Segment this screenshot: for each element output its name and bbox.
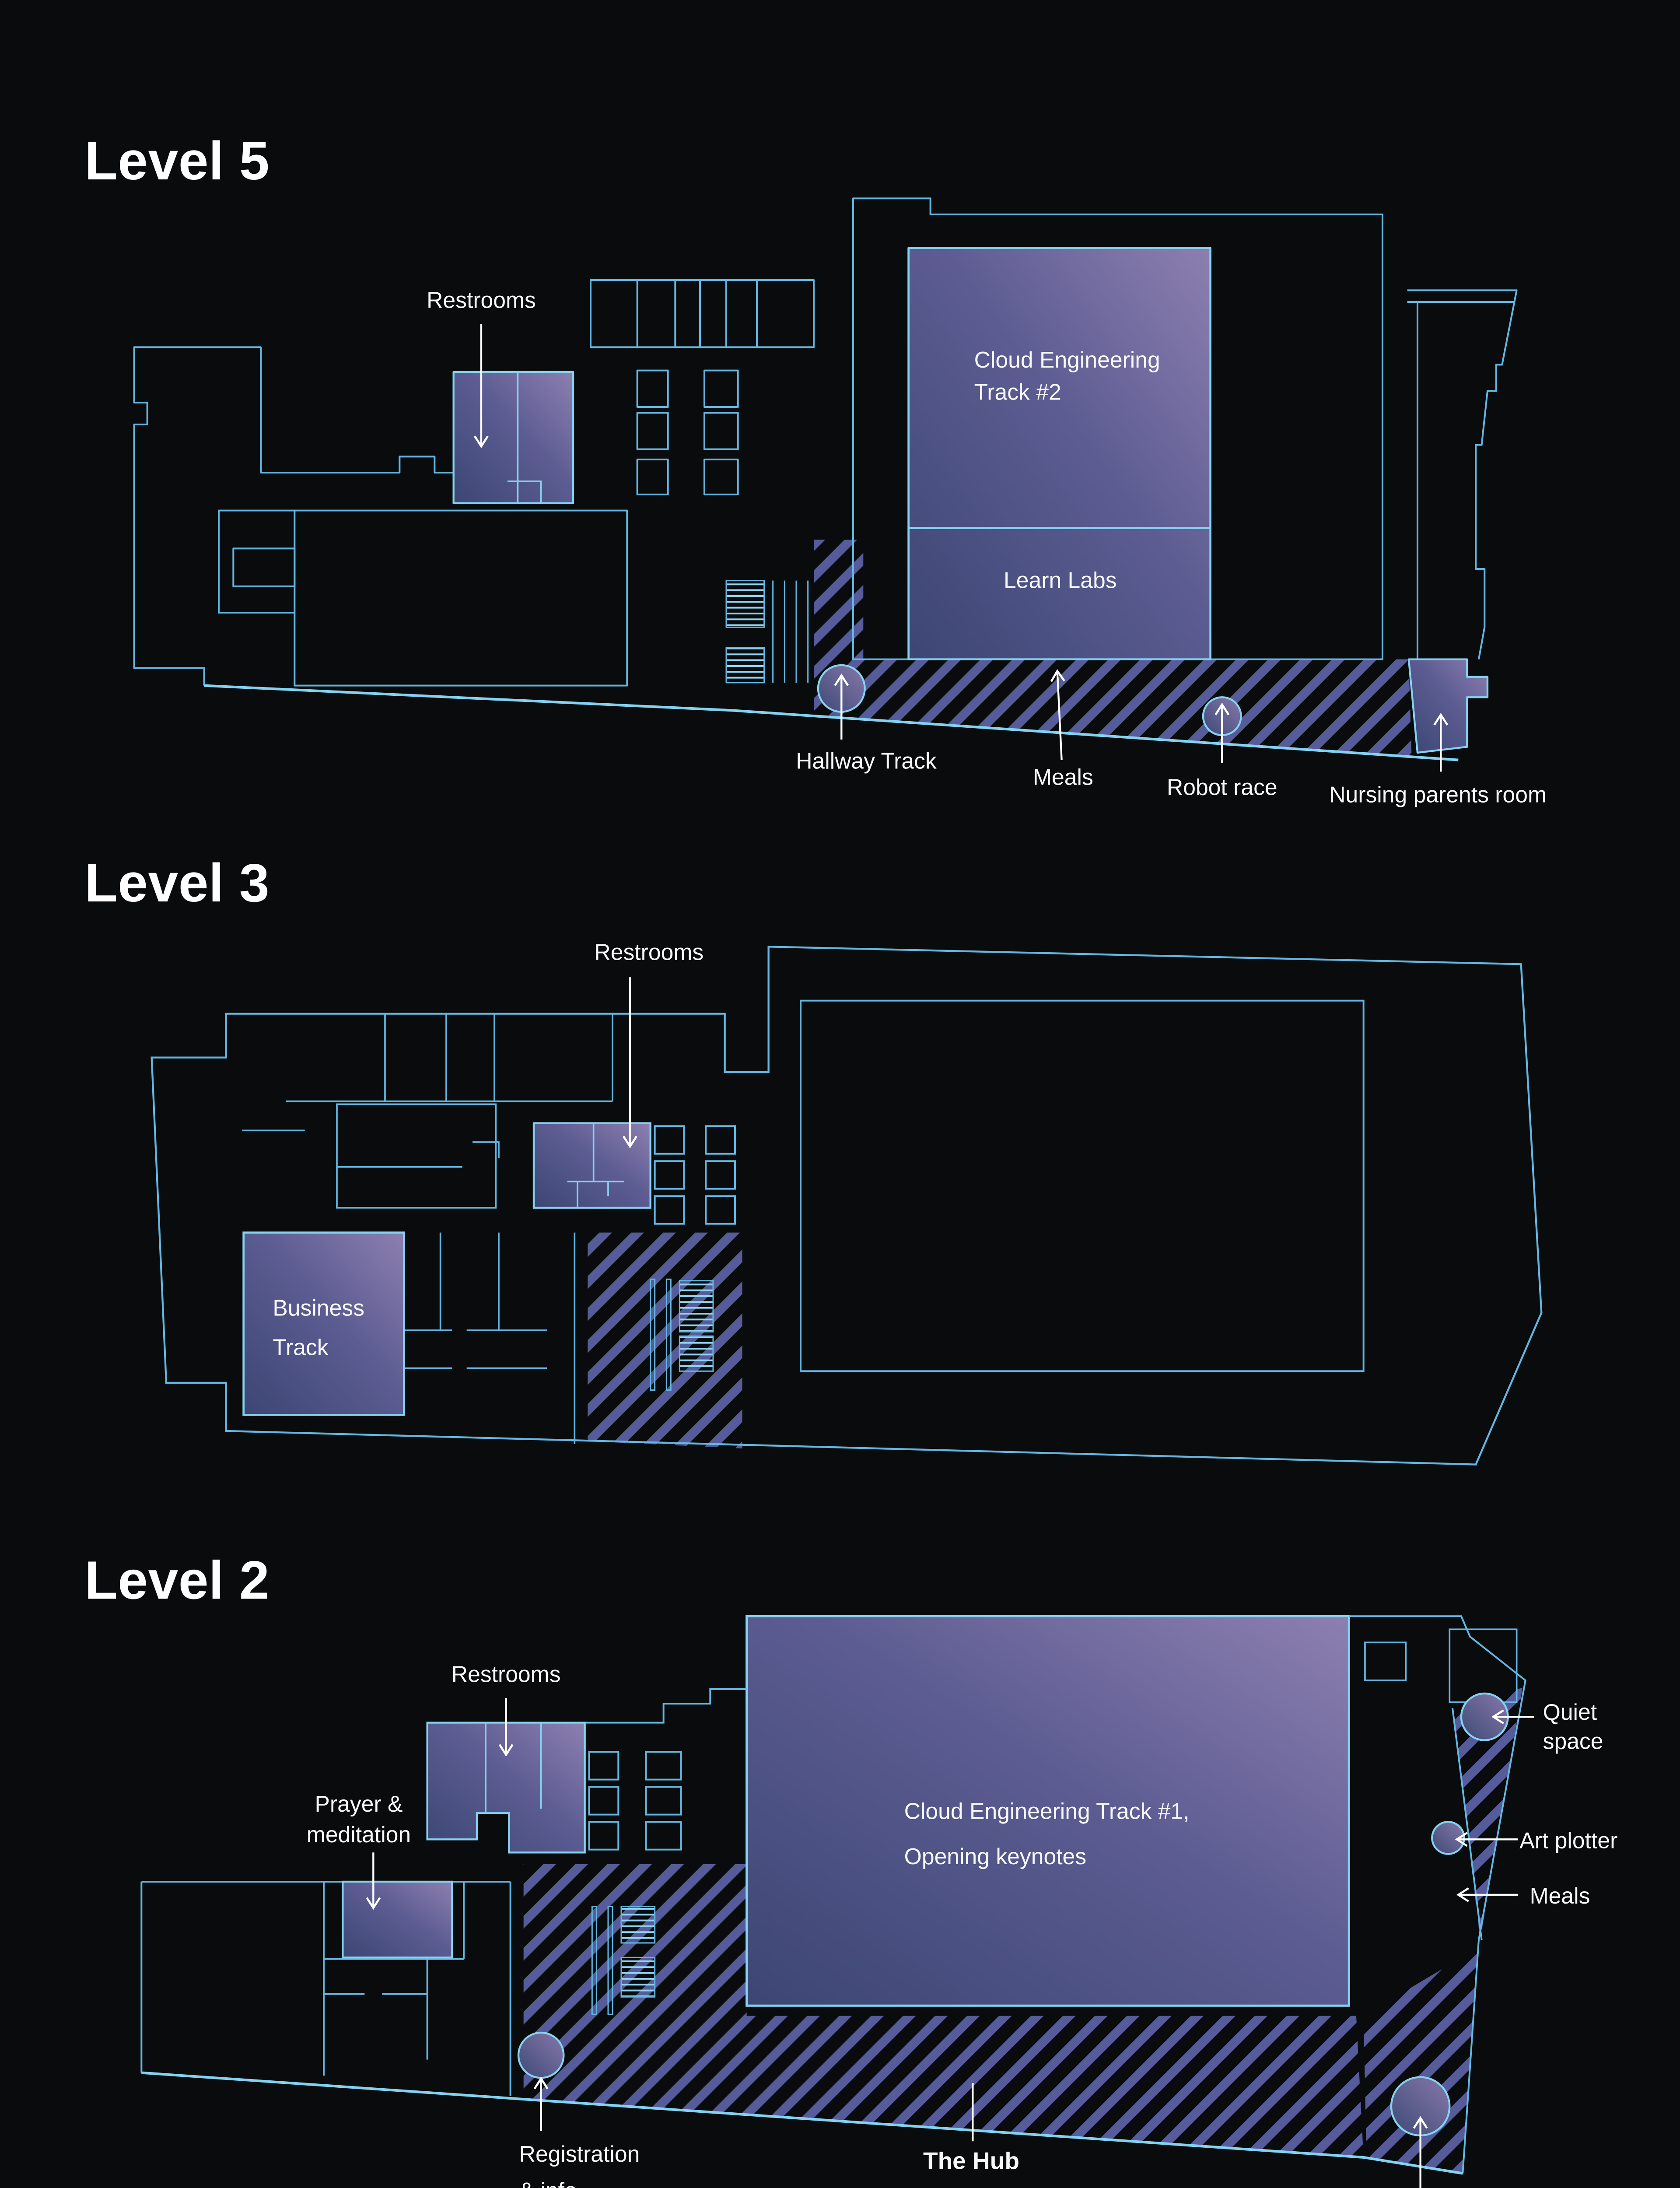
level3-restrooms-label: Restrooms (559, 938, 739, 968)
the-hub-label: The Hub (866, 2147, 1076, 2178)
hallway-track-label: Hallway Track (771, 747, 961, 778)
level3-lower-room-walls (402, 1233, 574, 1444)
level3-plan (152, 947, 1542, 1464)
level2-step-wall (585, 1689, 747, 1723)
quiet-space-line2: space (1543, 1729, 1603, 1758)
level5-west-annex-room (233, 548, 294, 586)
business-track-label: Business Track (273, 1290, 364, 1368)
registration-info-label: Registration & info (519, 2137, 640, 2188)
level5-elevator-bank (637, 371, 738, 494)
cloud-track1-line2: Opening keynotes (904, 1835, 1190, 1880)
nursing-parents-room-label: Nursing parents room (1307, 780, 1569, 811)
level2-west-walls (141, 1882, 510, 2096)
floor-plan-svg (0, 0, 1680, 2188)
cloud-track2-line1: Cloud Engineering (974, 346, 1160, 378)
level2-restrooms-label: Restrooms (416, 1660, 596, 1690)
room-nursing-parents (1409, 659, 1487, 753)
level2-east-room-a (1365, 1642, 1406, 1680)
venue-floor-plans: Level 5 Restrooms Cloud Engineering Trac… (0, 0, 1680, 2188)
level5-east-wing-walls (1407, 290, 1517, 659)
prayer-line1: Prayer & (271, 1790, 446, 1820)
level2-elevator-bank (589, 1752, 681, 1849)
level2-plan (141, 1616, 1534, 2188)
level3-title: Level 3 (84, 853, 269, 915)
room-restrooms-level3 (534, 1123, 651, 1208)
prayer-meditation-label: Prayer & meditation (271, 1790, 446, 1851)
level3-mid-room-walls (242, 1104, 499, 1208)
level5-plan (134, 198, 1517, 771)
level2-title: Level 2 (84, 1550, 269, 1612)
quiet-space-label: Quiet space (1543, 1699, 1603, 1757)
level5-stairs (726, 581, 808, 683)
level5-top-rooms (591, 280, 814, 347)
level2-meals-label: Meals (1530, 1882, 1590, 1912)
robot-race-label: Robot race (1142, 773, 1302, 804)
room-prayer-meditation (343, 1882, 452, 1957)
learn-labs-label: Learn Labs (929, 566, 1191, 596)
the-hub-subtitle: HashiCorp Zone, sponsors, meals (779, 2187, 1158, 2188)
cloud-track1-line1: Cloud Engineering Track #1, (904, 1790, 1190, 1835)
business-track-line2: Track (273, 1329, 364, 1368)
art-plotter-marker (1432, 1822, 1464, 1854)
level5-west-annex-wall (219, 511, 294, 613)
level5-restrooms-label: Restrooms (391, 286, 571, 316)
quiet-space-line1: Quiet (1543, 1699, 1603, 1729)
level3-elevator-bank (655, 1126, 735, 1224)
registration-marker (518, 2033, 563, 2078)
cloud-engineering-track1-label: Cloud Engineering Track #1, Opening keyn… (904, 1790, 1190, 1880)
level5-meals-label: Meals (1012, 763, 1114, 793)
room-restrooms-level5 (454, 372, 573, 503)
room-cloud-engineering-track-2 (909, 248, 1211, 659)
registration-line2: & info (519, 2174, 640, 2188)
cloud-track2-line2: Track #2 (974, 378, 1160, 410)
level5-top-room-dividers (637, 280, 757, 347)
art-plotter-label: Art plotter (1519, 1826, 1617, 1857)
prayer-line2: meditation (271, 1820, 446, 1851)
level3-ballroom (801, 1001, 1364, 1371)
level5-center-room (294, 511, 627, 686)
level3-top-room-walls (286, 1014, 612, 1101)
cloud-engineering-track2-label: Cloud Engineering Track #2 (974, 346, 1160, 410)
level3-hatch-zone (588, 1233, 742, 1448)
business-track-line1: Business (273, 1290, 364, 1329)
level5-title: Level 5 (84, 131, 269, 193)
registration-line1: Registration (519, 2137, 640, 2173)
